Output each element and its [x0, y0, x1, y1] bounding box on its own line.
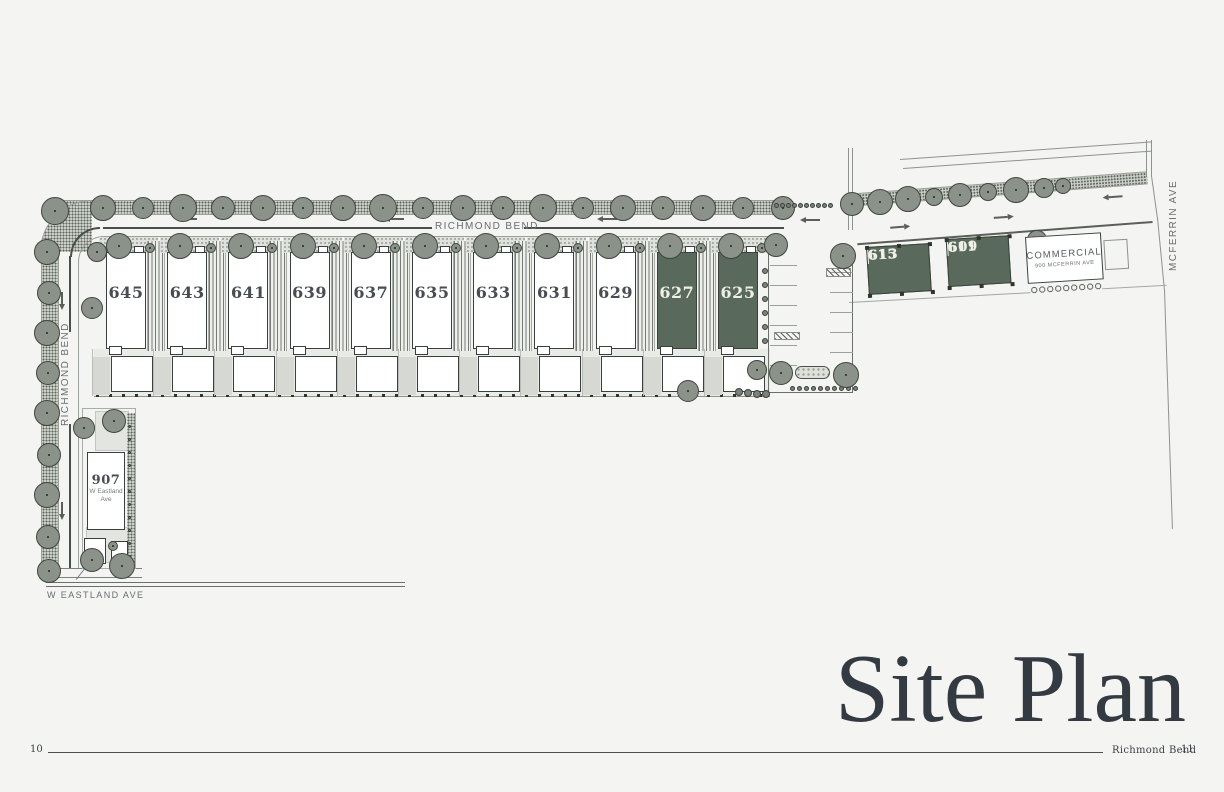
tree-icon	[34, 320, 60, 346]
tree-icon	[1003, 177, 1029, 203]
shrub-icon	[744, 389, 752, 397]
shrub-icon	[792, 203, 797, 208]
commercial-lot: COMMERCIAL 900 MCFERRIN AVE	[1025, 230, 1139, 301]
tree-icon	[108, 541, 118, 551]
tree-icon	[73, 417, 95, 439]
tree-icon	[37, 281, 61, 305]
tree-icon	[690, 195, 716, 221]
shrub-icon	[816, 203, 821, 208]
street-label-richmond-bend-left: RICHMOND BEND	[60, 334, 71, 426]
tree-icon	[330, 195, 356, 221]
tree-icon	[80, 548, 104, 572]
tree-icon	[677, 380, 699, 402]
street-label-w-eastland-ave: W EASTLAND AVE	[47, 590, 144, 600]
tree-icon	[37, 443, 61, 467]
tree-icon	[34, 239, 60, 265]
tree-icon	[732, 197, 754, 219]
tree-icon	[90, 195, 116, 221]
tree-icon	[290, 233, 316, 259]
shrub-icon	[780, 203, 785, 208]
shrub-icon	[762, 268, 768, 274]
tree-icon	[1055, 178, 1071, 194]
tree-icon	[206, 243, 216, 253]
tree-icon	[169, 194, 197, 222]
tree-icon	[572, 197, 594, 219]
shrub-icon	[774, 203, 779, 208]
tree-icon	[867, 189, 893, 215]
street-label-richmond-bend-top: RICHMOND BEND	[435, 221, 539, 232]
tree-icon	[351, 233, 377, 259]
tree-icon	[267, 243, 277, 253]
commercial-sidewalk	[1030, 281, 1102, 295]
tree-icon	[833, 362, 859, 388]
tree-icon	[895, 186, 921, 212]
tree-icon	[81, 297, 103, 319]
shrub-icon	[762, 390, 770, 398]
tree-icon	[512, 243, 522, 253]
shrub-icon	[762, 324, 768, 330]
tree-icon	[36, 525, 60, 549]
commercial-address: 900 MCFERRIN AVE	[1035, 260, 1095, 270]
tree-icon	[747, 360, 767, 380]
tree-icon	[34, 400, 60, 426]
tree-icon	[167, 233, 193, 259]
shrub-icon	[753, 390, 761, 398]
tree-icon	[596, 233, 622, 259]
tree-icon	[1034, 178, 1054, 198]
lane-arrow-icon	[61, 292, 63, 304]
tree-icon	[145, 243, 155, 253]
shrub-icon	[798, 203, 803, 208]
shrub-icon	[762, 310, 768, 316]
lane-arrow-icon	[61, 502, 63, 514]
tree-icon	[769, 361, 793, 385]
shrub-icon	[828, 203, 833, 208]
tree-icon	[450, 195, 476, 221]
tree-icon	[109, 553, 135, 579]
page-number-left: 10	[30, 744, 43, 755]
tree-icon	[34, 482, 60, 508]
tree-icon	[102, 409, 126, 433]
tree-icon	[37, 559, 61, 583]
tree-icon	[87, 242, 107, 262]
tree-icon	[250, 195, 276, 221]
shrub-icon	[810, 203, 815, 208]
tree-icon	[610, 195, 636, 221]
tree-icon	[771, 196, 795, 220]
shrub-icon	[762, 296, 768, 302]
tree-icon	[948, 183, 972, 207]
tree-icon	[657, 233, 683, 259]
tree-icon	[390, 243, 400, 253]
eastland-house-number: 907	[92, 473, 121, 488]
tree-icon	[925, 188, 943, 206]
shrub-icon	[762, 282, 768, 288]
commercial-building: COMMERCIAL 900 MCFERRIN AVE	[1025, 232, 1104, 284]
tree-icon	[696, 243, 706, 253]
commercial-side-structure	[1103, 239, 1129, 270]
shrub-icon	[735, 388, 743, 396]
tree-icon	[329, 243, 339, 253]
tree-icon	[529, 194, 557, 222]
shrub-icon	[786, 203, 791, 208]
brochure-page: 6456436416396376356336316296276256156136…	[0, 0, 1224, 792]
tree-icon	[451, 243, 461, 253]
tree-icon	[979, 183, 997, 201]
tree-icon	[132, 197, 154, 219]
shrub-icon	[804, 203, 809, 208]
tree-icon	[473, 233, 499, 259]
eastland-house-street-2: Ave	[100, 496, 111, 504]
tree-icon	[292, 197, 314, 219]
shrub-icon	[762, 338, 768, 344]
tree-icon	[412, 233, 438, 259]
tree-icon	[534, 233, 560, 259]
tree-icon	[764, 233, 788, 257]
tree-icon	[635, 243, 645, 253]
tree-icon	[36, 361, 60, 385]
tree-icon	[228, 233, 254, 259]
tree-icon	[718, 233, 744, 259]
tree-icon	[106, 233, 132, 259]
tree-icon	[491, 196, 515, 220]
street-label-mcferrin-ave: MCFERRIN AVE	[1168, 183, 1179, 271]
tree-icon	[412, 197, 434, 219]
footer-rule	[48, 752, 1103, 753]
tree-icon	[41, 197, 69, 225]
tree-icon	[651, 196, 675, 220]
lane-arrow-icon	[806, 219, 820, 221]
tree-icon	[573, 243, 583, 253]
tree-icon	[369, 194, 397, 222]
tree-icon	[840, 192, 864, 216]
eastland-house-street-1: W Eastland	[89, 488, 122, 496]
page-number-right: 11	[1181, 744, 1194, 755]
tree-icon	[211, 196, 235, 220]
eastland-house-907: 907 W Eastland Ave	[87, 452, 125, 530]
shrub-icon	[822, 203, 827, 208]
tree-icon	[830, 243, 856, 269]
page-title: Site Plan	[835, 640, 1186, 738]
